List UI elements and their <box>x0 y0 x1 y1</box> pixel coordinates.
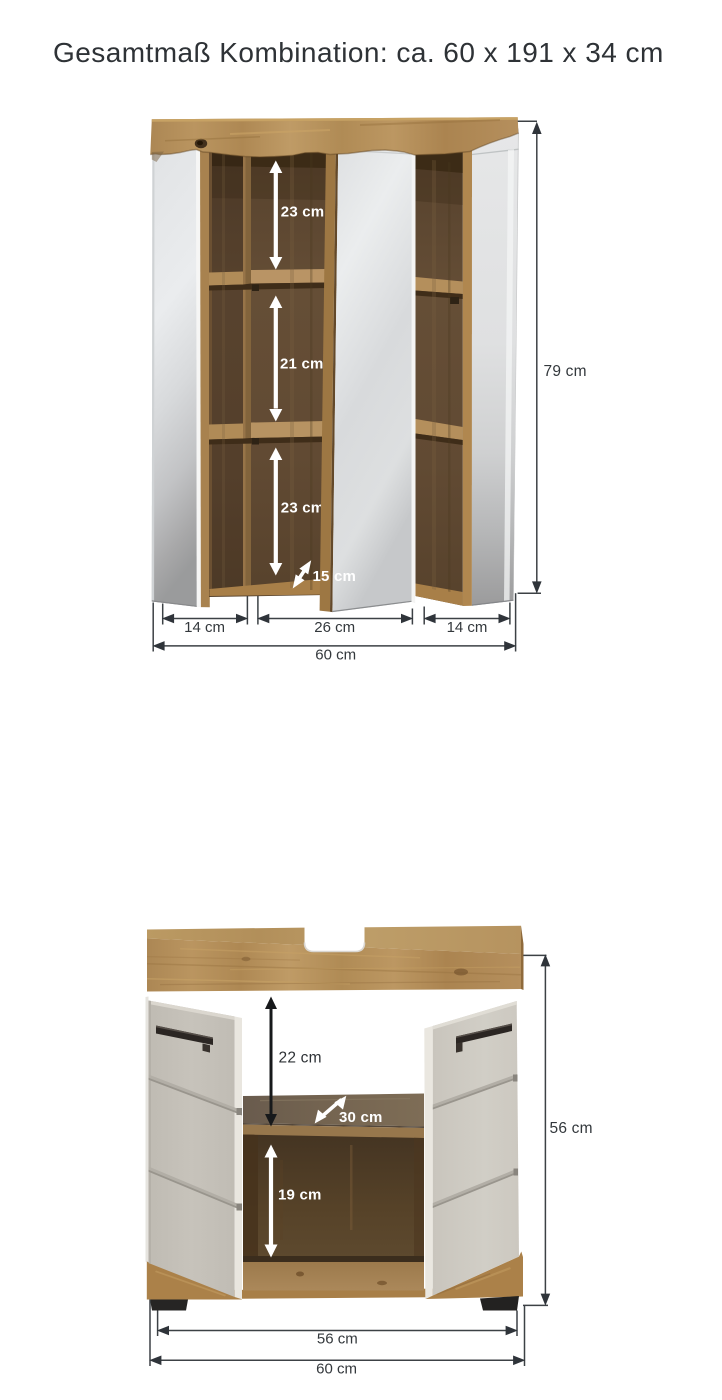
svg-text:60 cm: 60 cm <box>315 647 356 664</box>
svg-text:15 cm: 15 cm <box>313 568 357 585</box>
svg-text:14 cm: 14 cm <box>447 619 488 636</box>
svg-text:21 cm: 21 cm <box>280 356 324 373</box>
svg-text:19 cm: 19 cm <box>278 1187 322 1204</box>
svg-text:56 cm: 56 cm <box>550 1120 593 1137</box>
svg-text:22 cm: 22 cm <box>279 1050 322 1067</box>
svg-text:60 cm: 60 cm <box>316 1360 357 1377</box>
svg-text:56 cm: 56 cm <box>317 1331 358 1348</box>
svg-text:23 cm: 23 cm <box>281 204 325 221</box>
svg-text:30 cm: 30 cm <box>339 1109 383 1126</box>
svg-text:23 cm: 23 cm <box>281 500 325 517</box>
svg-text:14 cm: 14 cm <box>184 619 225 636</box>
svg-text:79 cm: 79 cm <box>544 363 587 380</box>
svg-text:26 cm: 26 cm <box>314 619 355 636</box>
